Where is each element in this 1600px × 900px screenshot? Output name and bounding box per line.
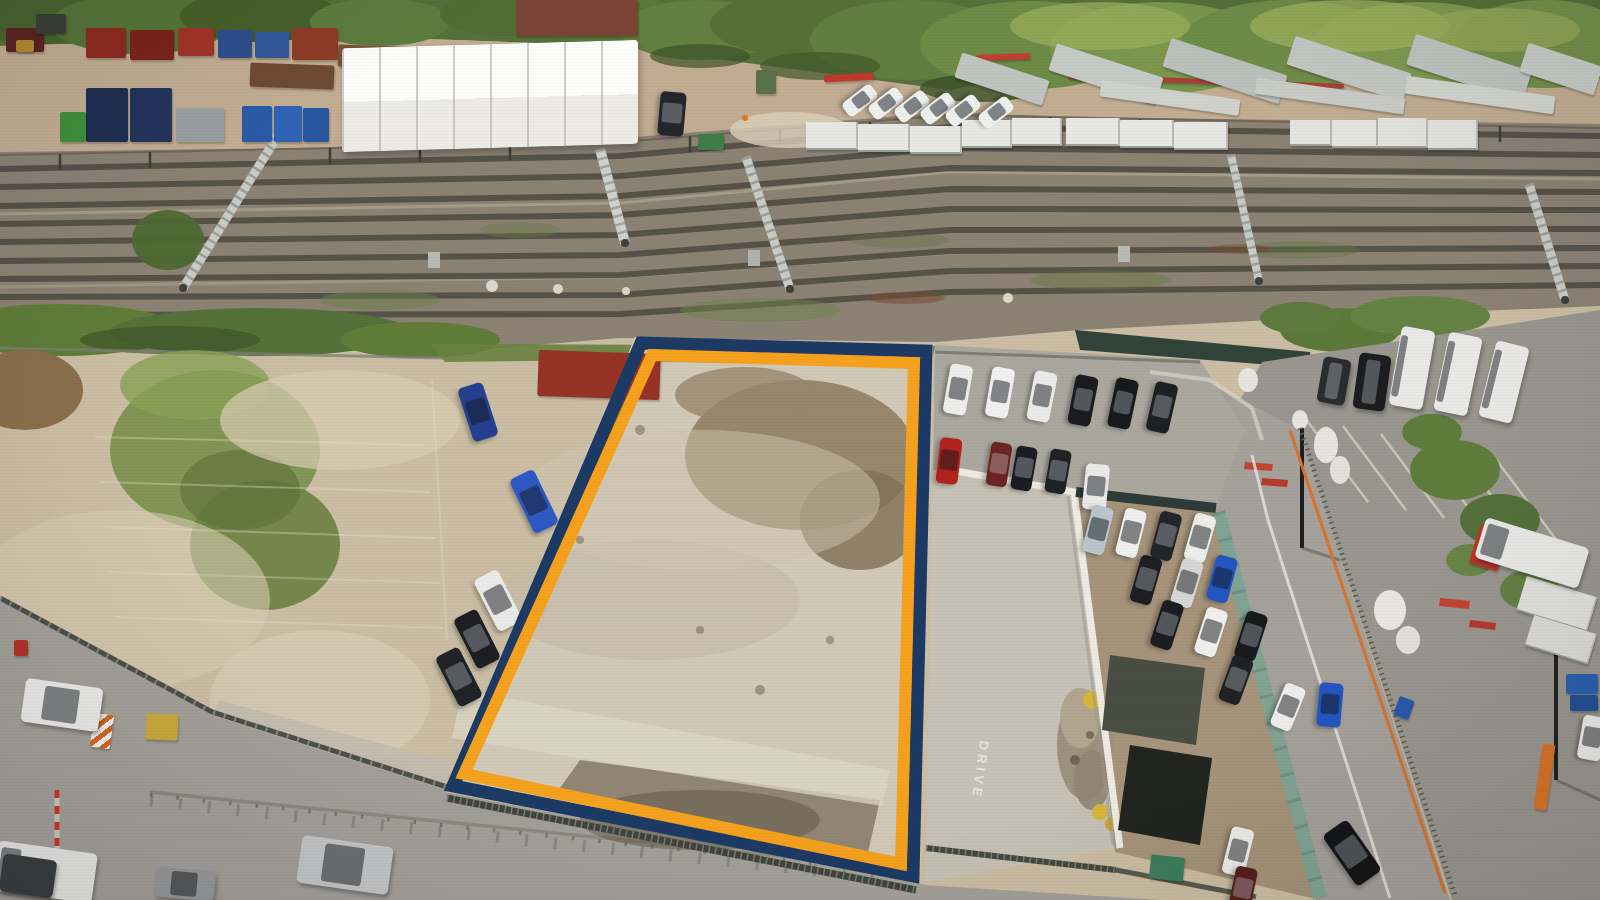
site-boundary-layer [0,0,1600,900]
site-boundary-outline-orange [464,355,914,864]
site-boundary-outline-navy [453,343,926,876]
aerial-site-photo: DRIVE [0,0,1600,900]
